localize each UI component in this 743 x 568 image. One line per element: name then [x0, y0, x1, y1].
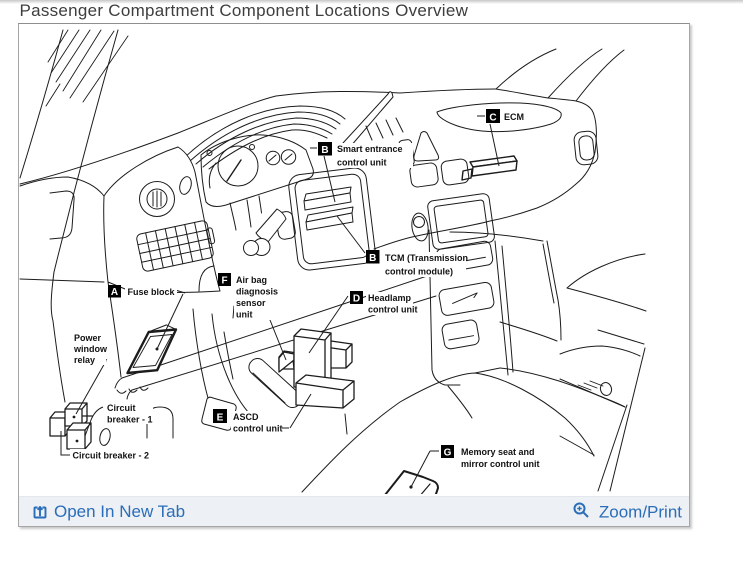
svg-text:TCM (Transmission: TCM (Transmission	[385, 253, 468, 263]
svg-text:Power: Power	[74, 333, 102, 343]
svg-text:control unit: control unit	[233, 424, 283, 434]
svg-text:D: D	[353, 294, 360, 305]
svg-text:Smart entrance: Smart entrance	[337, 144, 403, 154]
svg-text:A: A	[111, 287, 118, 298]
svg-text:Fuse block: Fuse block	[128, 287, 176, 297]
svg-text:window: window	[73, 344, 108, 354]
svg-text:breaker - 1: breaker - 1	[107, 415, 153, 425]
svg-text:mirror control unit: mirror control unit	[461, 459, 540, 469]
svg-text:G: G	[444, 448, 452, 459]
svg-text:Circuit: Circuit	[107, 403, 136, 413]
svg-text:F: F	[221, 276, 227, 287]
svg-text:Circuit breaker - 2: Circuit breaker - 2	[73, 451, 150, 461]
svg-text:sensor: sensor	[236, 298, 266, 308]
svg-text:Air bag: Air bag	[236, 275, 267, 285]
svg-text:control unit: control unit	[368, 305, 418, 315]
svg-text:E: E	[217, 413, 224, 424]
svg-text:Memory seat and: Memory seat and	[461, 447, 535, 457]
svg-text:ECM: ECM	[504, 112, 524, 122]
svg-text:Headlamp: Headlamp	[368, 293, 412, 303]
svg-text:B: B	[321, 145, 328, 156]
svg-text:ASCD: ASCD	[233, 412, 259, 422]
svg-text:relay: relay	[74, 355, 95, 365]
svg-text:control module): control module)	[385, 267, 453, 277]
svg-text:B: B	[369, 253, 376, 264]
svg-text:diagnosis: diagnosis	[236, 287, 278, 297]
svg-text:C: C	[489, 113, 496, 124]
svg-text:control unit: control unit	[337, 158, 387, 168]
svg-text:unit: unit	[236, 310, 253, 320]
